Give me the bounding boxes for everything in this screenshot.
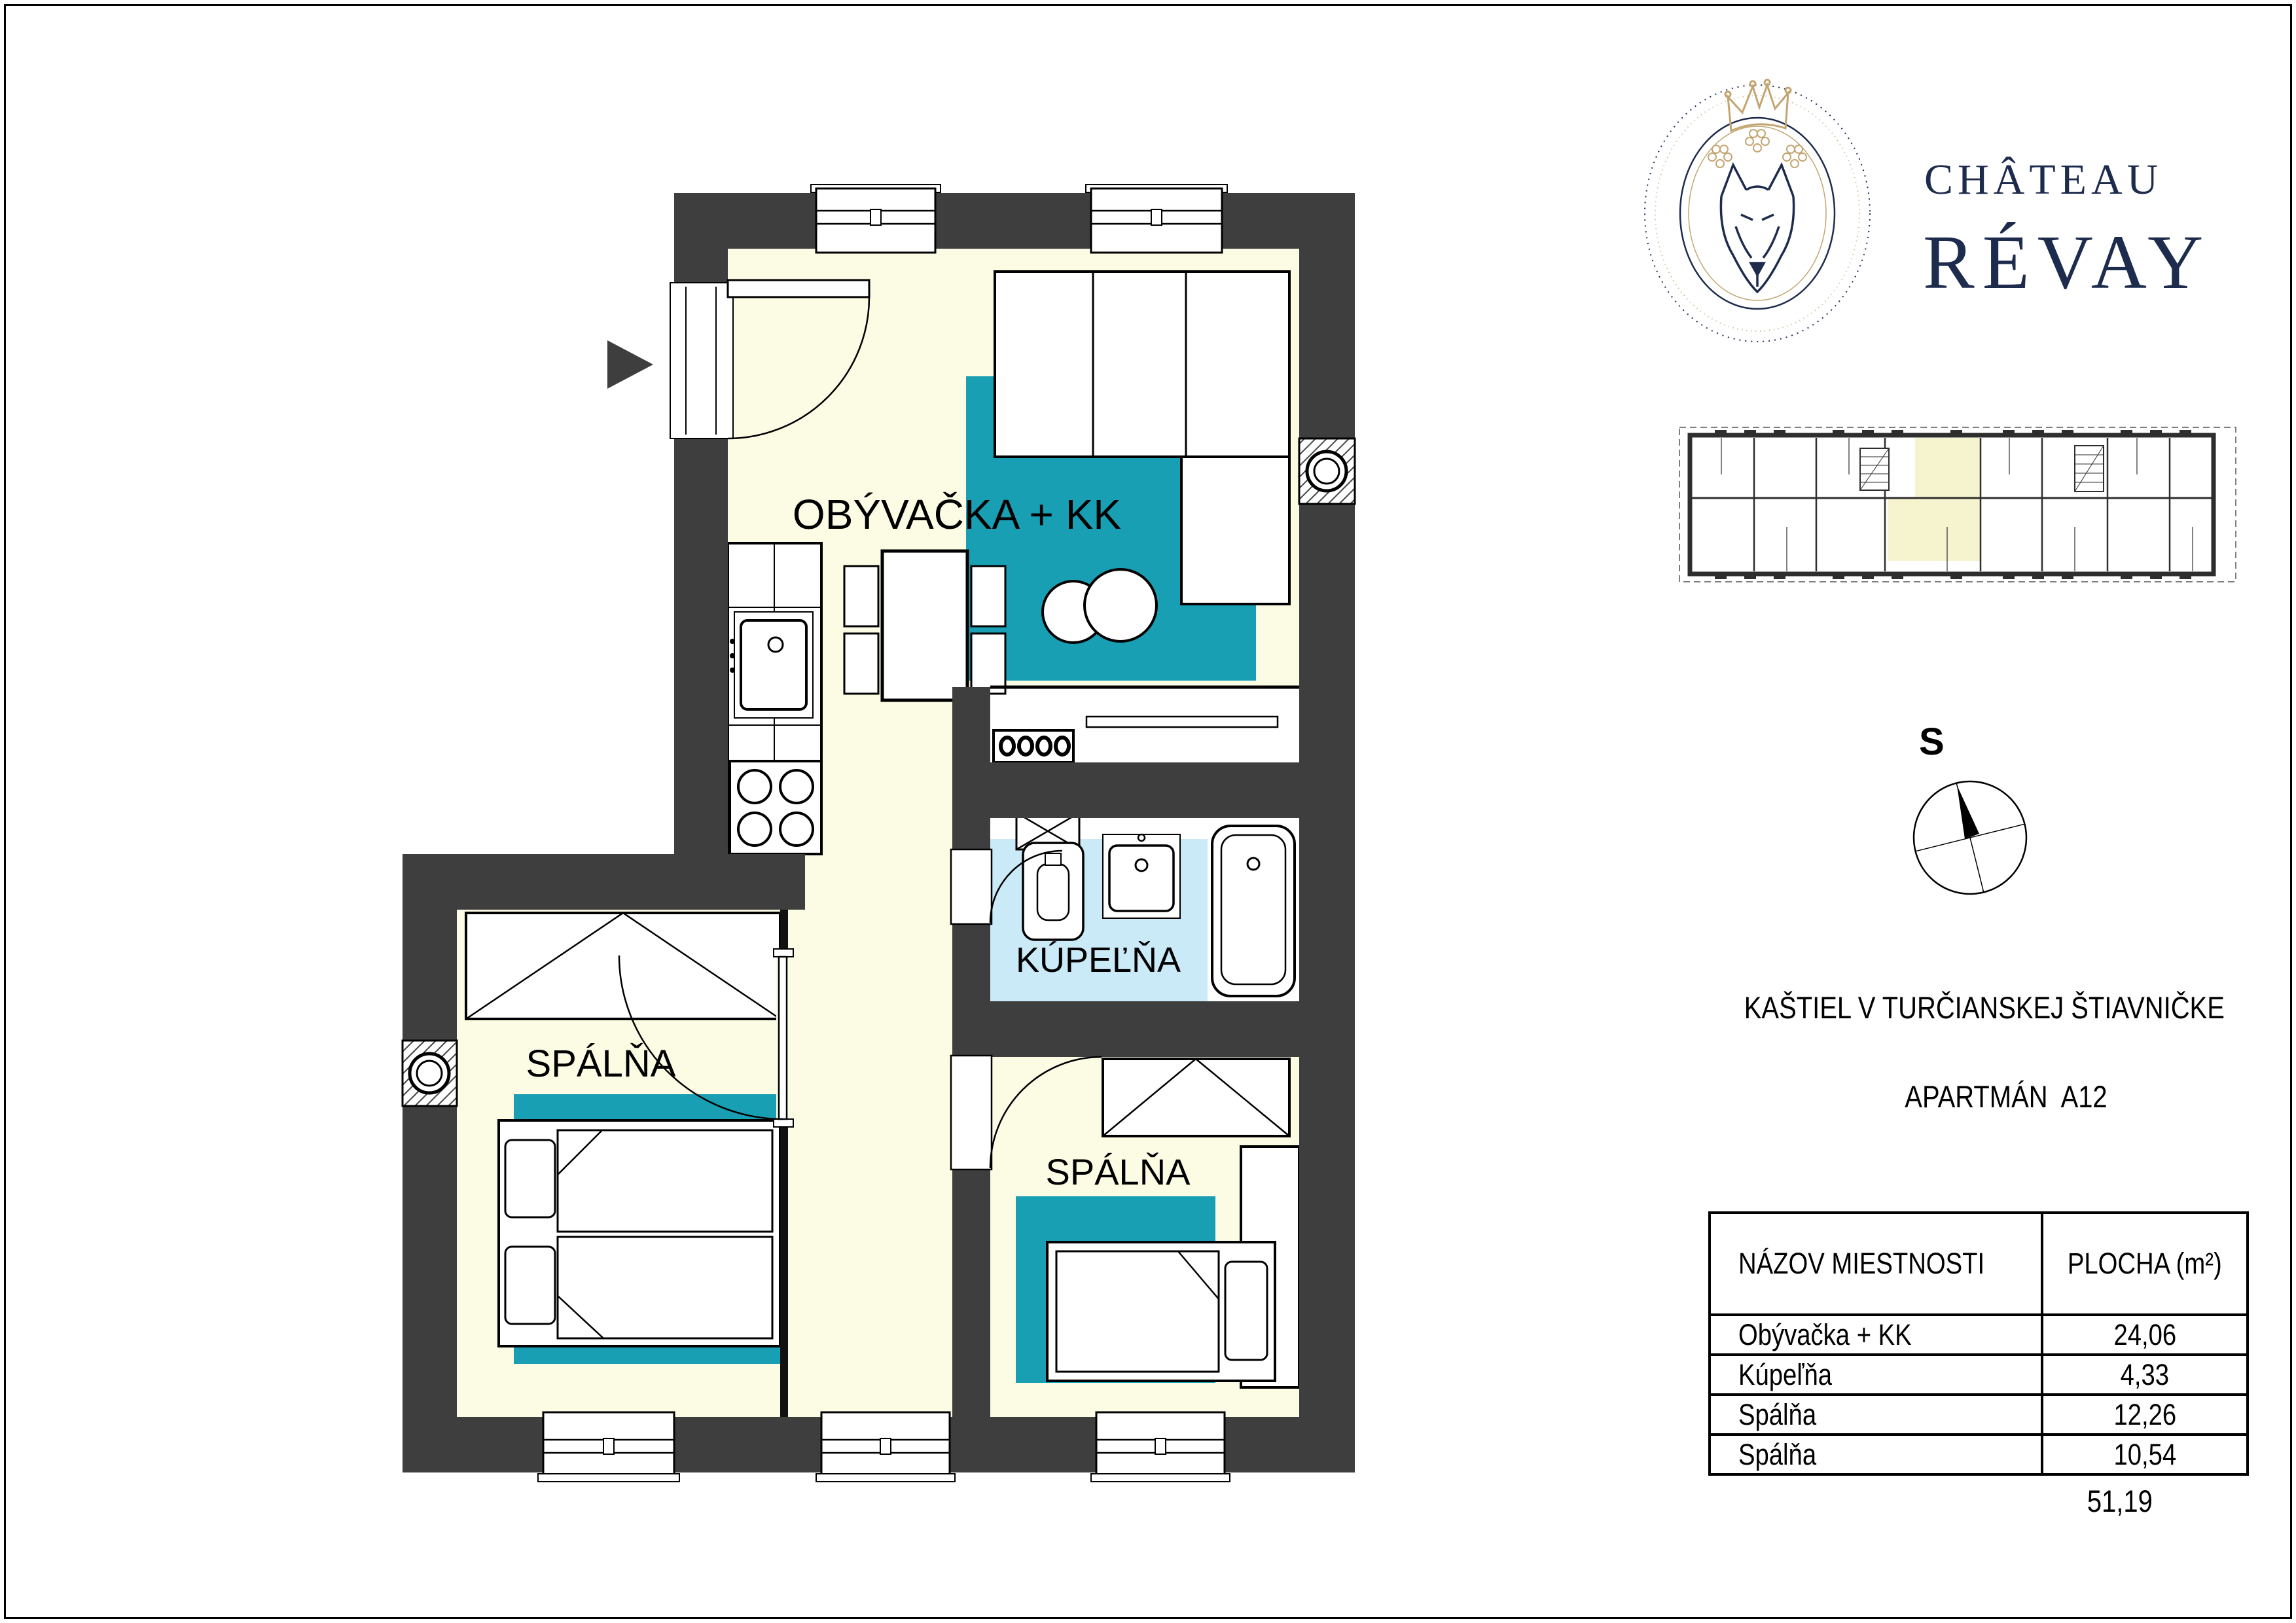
- dining-chair: [844, 566, 878, 626]
- compass-cross: [1902, 770, 2039, 906]
- header-area: PLOCHA (m²): [2042, 1213, 2248, 1315]
- bedroom2-wardrobe: [1103, 1059, 1289, 1136]
- pillow: [505, 1140, 555, 1217]
- wolf-icon: [1721, 165, 1793, 292]
- chimney-icon: [403, 1041, 457, 1106]
- stairs-icon: [2075, 446, 2104, 491]
- window: [811, 185, 941, 253]
- floor-plan: OBÝVAČKA + KK KÚPEĽŇA SPÁLŇA SPÁLŇA: [393, 183, 1374, 1492]
- closet-rod: [1086, 717, 1278, 727]
- apartment-title: APARTMÁN A12: [1728, 1079, 2284, 1118]
- building-overview: [1676, 422, 2245, 592]
- table-row: Spálňa 10,54: [1710, 1435, 2248, 1474]
- stairs-icon: [1860, 448, 1889, 490]
- table-row: Spálňa 12,26: [1710, 1395, 2248, 1435]
- mattress: [558, 1130, 772, 1232]
- bedroom1-label: SPÁLŇA: [526, 1043, 676, 1085]
- compass-needle-icon: [1957, 785, 1979, 839]
- flower-icons: [1708, 130, 1806, 168]
- pillow: [505, 1247, 555, 1324]
- window: [1091, 1412, 1230, 1482]
- bedroom2-label: SPÁLŇA: [1046, 1151, 1191, 1192]
- bathroom-sink: [1103, 834, 1180, 918]
- dining-chair: [844, 633, 878, 694]
- logo-emblem-icon: [1645, 80, 1870, 342]
- page-canvas: OBÝVAČKA + KK KÚPEĽŇA SPÁLŇA SPÁLŇA: [0, 0, 2296, 1623]
- living-room-label: OBÝVAČKA + KK: [793, 491, 1121, 538]
- table-row: Obývačka + KK 24,06: [1710, 1315, 2248, 1355]
- overview-highlight-unit: [1915, 438, 1981, 498]
- table-row: Kúpeľňa 4,33: [1710, 1355, 2248, 1395]
- brand-line1: CHÂTEAU: [1924, 156, 2162, 204]
- pillow: [1225, 1262, 1267, 1360]
- area-table: NÁZOV MIESTNOSTI PLOCHA (m²) Obývačka + …: [1708, 1211, 2249, 1476]
- overview-highlight-unit: [1888, 498, 1981, 561]
- dining-set: [844, 551, 1005, 700]
- entry-arrow-icon: [607, 340, 653, 389]
- stove: [730, 761, 821, 854]
- dining-chair: [971, 633, 1005, 694]
- bathroom-label: KÚPEĽŇA: [1016, 940, 1181, 980]
- window: [816, 1412, 955, 1482]
- area-table-header: NÁZOV MIESTNOSTI PLOCHA (m²): [1710, 1213, 2248, 1315]
- compass: S: [1892, 704, 2062, 926]
- dining-table: [882, 551, 967, 700]
- brand-line2: RÉVAY: [1923, 219, 2211, 305]
- bathtub: [1212, 826, 1295, 996]
- total-area: 51,19: [2018, 1483, 2222, 1519]
- project-title: KAŠTIEL V TURČIANSKEJ ŠTIAVNIČKE: [1702, 990, 2258, 1029]
- bedroom1-wardrobe: [466, 913, 780, 1019]
- brand-logo: CHÂTEAU RÉVAY: [1617, 65, 2219, 353]
- bedroom1-bed: [499, 1120, 780, 1346]
- bedroom2-bed: [1047, 1242, 1275, 1381]
- compass-north-label: S: [1919, 721, 1945, 763]
- kitchen-sink: [730, 612, 813, 718]
- chimney-icon: [1299, 438, 1355, 504]
- window: [1086, 185, 1227, 253]
- coffee-table: [1085, 569, 1157, 641]
- mattress: [558, 1237, 772, 1338]
- header-room-name: NÁZOV MIESTNOSTI: [1710, 1213, 2042, 1315]
- crown-icon: [1725, 80, 1791, 131]
- window: [538, 1412, 679, 1482]
- dining-chair: [971, 566, 1005, 626]
